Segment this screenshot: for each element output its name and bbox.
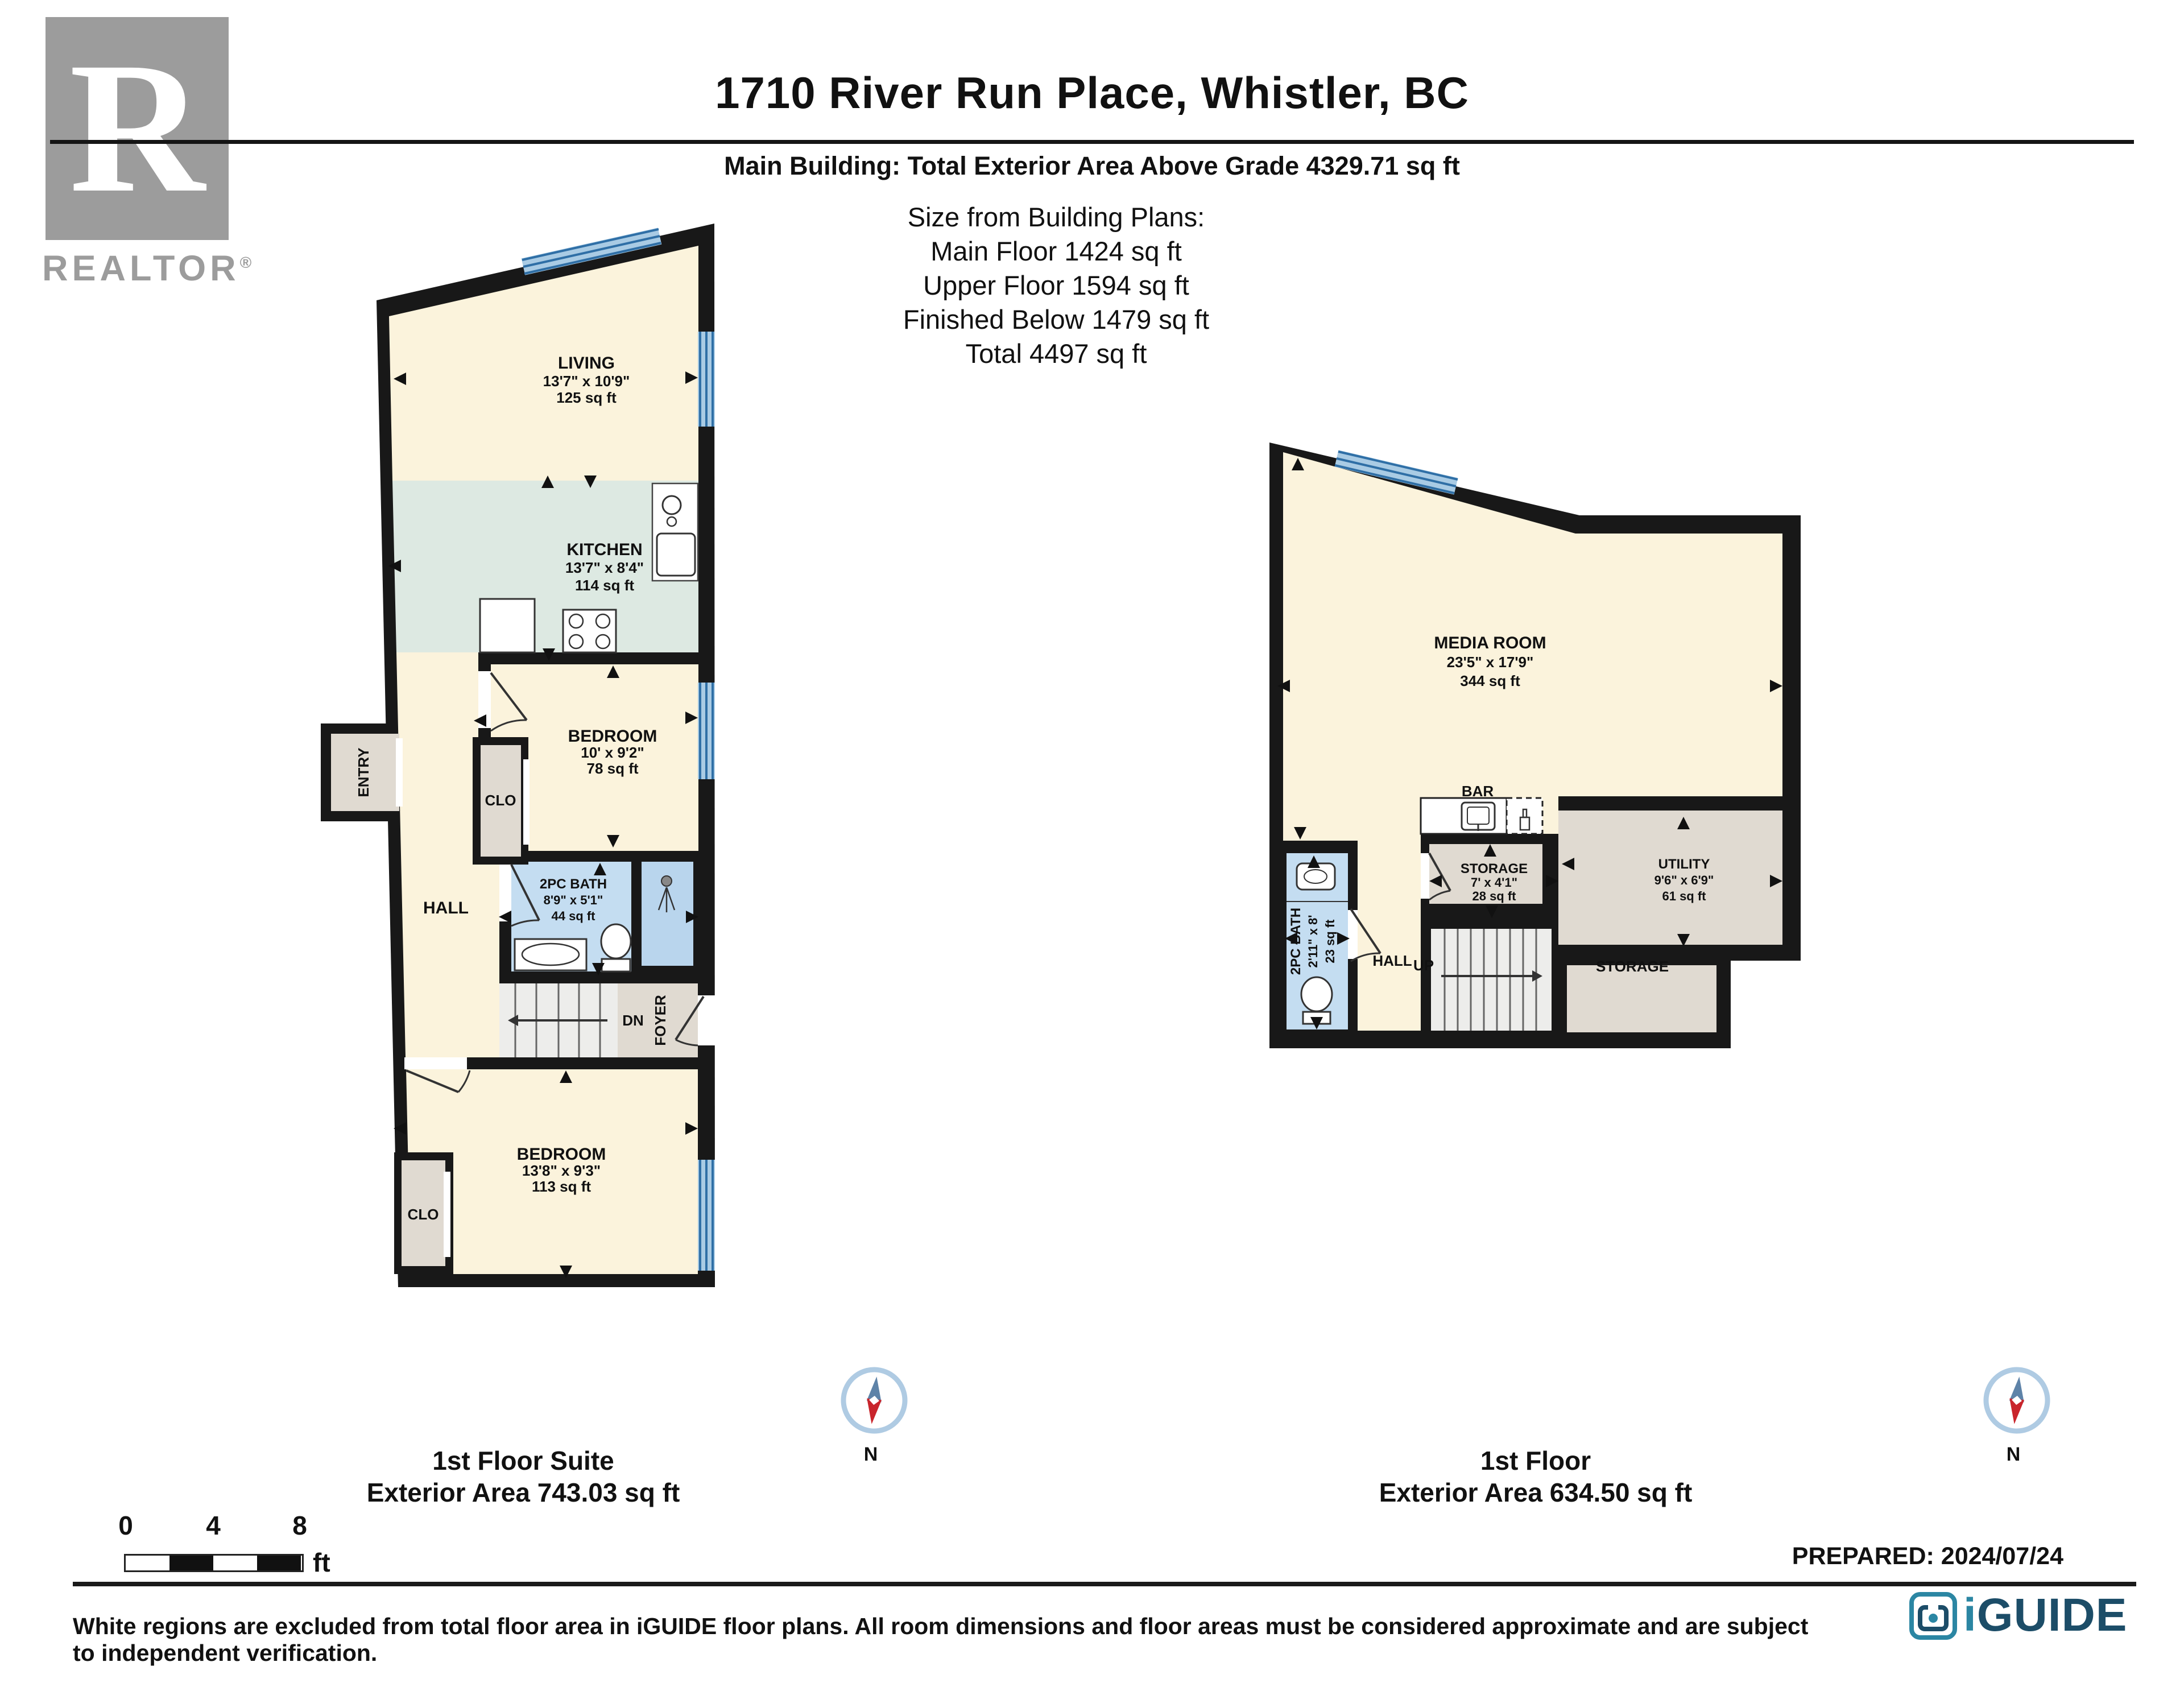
clo-bottom-opening — [444, 1172, 450, 1257]
registered-mark: ® — [240, 254, 256, 271]
floorplan-sheet: R REALTOR® 1710 River Run Place, Whistle… — [0, 0, 2184, 1687]
clo-mid-opening — [523, 759, 530, 845]
svg-text:9'6" x 6'9": 9'6" x 6'9" — [1654, 873, 1714, 887]
svg-text:78 sq ft: 78 sq ft — [586, 760, 638, 777]
svg-text:125 sq ft: 125 sq ft — [556, 389, 617, 406]
page-subtitle: Main Building: Total Exterior Area Above… — [0, 151, 2184, 181]
dn-label: DN — [622, 1012, 644, 1029]
hall-label: HALL — [423, 899, 469, 917]
footer-divider — [73, 1582, 2136, 1586]
storage-bottom-label: STORAGE — [1596, 958, 1669, 975]
clo-mid-label: CLO — [485, 792, 516, 809]
disclaimer-text: White regions are excluded from total fl… — [73, 1613, 1836, 1667]
living-label: LIVING — [558, 354, 615, 373]
bar-fixtures — [1421, 798, 1542, 834]
svg-text:10' x 9'2": 10' x 9'2" — [581, 744, 644, 761]
toilet-icon — [1301, 977, 1332, 1011]
size-heading: Size from Building Plans: — [715, 200, 1397, 234]
floor-plan-suite: LIVING 13'7" x 10'9" 125 sq ft KITCHEN 1… — [307, 210, 728, 1308]
storage-mid-label: STORAGE — [1461, 861, 1528, 876]
shower-head-icon — [661, 876, 672, 886]
svg-text:2PC BATH: 2PC BATH — [1288, 908, 1304, 975]
fridge-icon — [480, 599, 535, 652]
up-label: UP — [1413, 957, 1434, 974]
entry-label: ENTRY — [355, 747, 372, 797]
svg-text:344 sq ft: 344 sq ft — [1460, 672, 1520, 689]
svg-text:44 sq ft: 44 sq ft — [551, 909, 595, 923]
scale-unit: ft — [313, 1547, 330, 1578]
caption-first-area: Exterior Area 634.50 sq ft — [1308, 1477, 1763, 1508]
svg-text:113 sq ft: 113 sq ft — [532, 1178, 591, 1195]
svg-text:23 sq ft: 23 sq ft — [1323, 919, 1337, 964]
svg-text:28 sq ft: 28 sq ft — [1472, 889, 1516, 903]
room-storage-bottom — [1567, 965, 1716, 1032]
svg-text:13'8" x 9'3": 13'8" x 9'3" — [522, 1162, 601, 1179]
compass-first: N — [1977, 1359, 2057, 1473]
svg-text:13'7" x 10'9": 13'7" x 10'9" — [543, 373, 630, 390]
svg-text:61 sq ft: 61 sq ft — [1662, 889, 1706, 903]
toilet-icon — [601, 924, 631, 958]
scale-tick-4: 4 — [196, 1510, 230, 1541]
caption-first-title: 1st Floor — [1308, 1445, 1763, 1477]
prepared-date: PREPARED: 2024/07/24 — [1792, 1543, 2063, 1570]
scale-bar — [124, 1554, 304, 1572]
scale-tick-0: 0 — [109, 1510, 143, 1541]
clo-bottom-label: CLO — [408, 1206, 439, 1223]
compass-suite: N — [834, 1359, 914, 1473]
size-from-building-plans: Size from Building Plans: Main Floor 142… — [715, 200, 1397, 371]
kitchen-label: KITCHEN — [566, 540, 642, 559]
scale-tick-8: 8 — [283, 1510, 317, 1541]
hall-first-label: HALL — [1372, 952, 1412, 969]
svg-text:114 sq ft: 114 sq ft — [575, 577, 634, 594]
svg-text:2'11" x 8': 2'11" x 8' — [1306, 915, 1320, 967]
svg-text:N: N — [864, 1444, 878, 1465]
iguide-logo-icon — [1909, 1591, 1958, 1640]
sink-icon — [657, 534, 695, 576]
entry-opening — [396, 738, 403, 807]
floor-plan-first: BAR — [1257, 429, 1911, 1061]
size-line-upper: Upper Floor 1594 sq ft — [715, 268, 1397, 303]
iguide-wordmark: iGUIDE — [1963, 1589, 2128, 1642]
media-label: MEDIA ROOM — [1434, 634, 1546, 652]
size-line-below: Finished Below 1479 sq ft — [715, 303, 1397, 337]
size-line-total: Total 4497 sq ft — [715, 337, 1397, 371]
bath-label: 2PC BATH — [540, 876, 607, 892]
caption-first: 1st Floor Exterior Area 634.50 sq ft — [1308, 1445, 1763, 1508]
foyer-label: FOYER — [652, 995, 669, 1046]
svg-text:N: N — [2007, 1444, 2021, 1465]
svg-text:13'7" x 8'4": 13'7" x 8'4" — [565, 559, 644, 576]
bedroom-bottom-label: BEDROOM — [517, 1145, 606, 1164]
realtor-wordmark: REALTOR® — [42, 248, 270, 289]
realtor-r-glyph: R — [45, 17, 229, 239]
svg-text:8'9" x 5'1": 8'9" x 5'1" — [544, 893, 603, 907]
svg-text:7' x 4'1": 7' x 4'1" — [1471, 875, 1517, 890]
svg-text:23'5" x 17'9": 23'5" x 17'9" — [1447, 654, 1534, 671]
caption-suite-area: Exterior Area 743.03 sq ft — [296, 1477, 751, 1508]
bedroom-mid-label: BEDROOM — [568, 727, 657, 746]
realtor-logo: R — [45, 17, 229, 240]
header-divider — [50, 140, 2134, 144]
size-line-main: Main Floor 1424 sq ft — [715, 234, 1397, 268]
page-title: 1710 River Run Place, Whistler, BC — [0, 67, 2184, 119]
utility-label: UTILITY — [1658, 857, 1710, 872]
caption-suite: 1st Floor Suite Exterior Area 743.03 sq … — [296, 1445, 751, 1508]
caption-suite-title: 1st Floor Suite — [296, 1445, 751, 1477]
